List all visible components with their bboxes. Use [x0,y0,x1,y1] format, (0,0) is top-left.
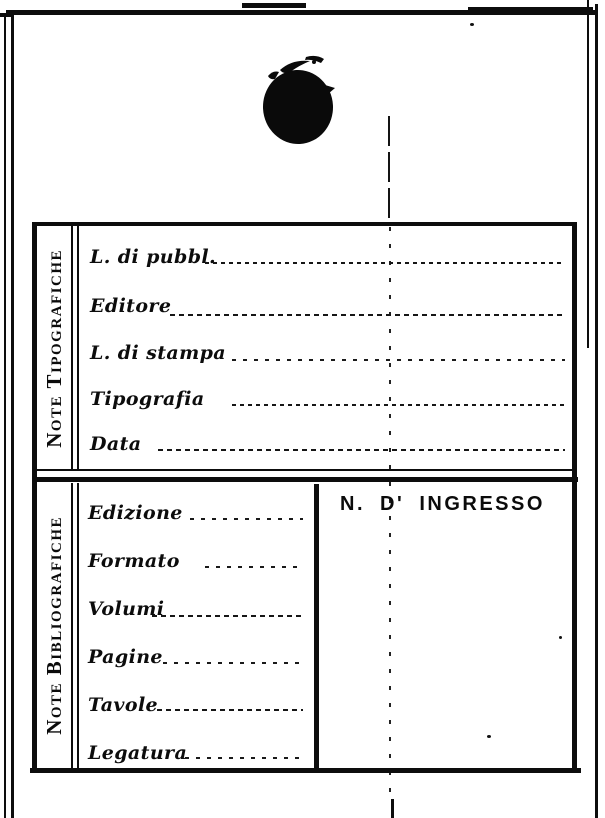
scan-speckle [559,636,562,639]
field-label-data: Data [90,435,141,454]
fold-line-bottom-tick [391,799,394,818]
section-label-tipografiche: Note Tipografiche [42,249,67,448]
ink-blot-stamp [248,48,358,168]
section-note-bibliografiche: Note Bibliografiche [36,483,72,768]
fill-line-legatura [185,757,303,759]
ingresso-heading: N. D' INGRESSO [340,494,545,514]
fold-line-top [388,116,390,222]
scan-border-top-double [242,3,306,8]
table-border-bottom [30,768,581,773]
fill-line-edizione [190,518,303,520]
section-note-tipografiche: Note Tipografiche [36,227,72,469]
fill-line-tipografia [232,404,565,406]
fill-line-formato [205,566,303,568]
fill-line-tavole [157,709,303,711]
section-label-bibliografiche: Note Bibliografiche [42,516,67,735]
fill-line-pagine [163,662,303,664]
field-label-formato: Formato [88,552,180,571]
field-label-pagine: Pagine [88,648,163,667]
field-label-tipografia: Tipografia [90,390,205,409]
scan-speckle [487,735,491,738]
section-divider-thin [36,469,574,471]
field-label-legatura: Legatura [88,744,187,763]
scan-border-right-inner [587,0,589,348]
fill-line-luogo-stampa [232,359,565,361]
field-label-tavole: Tavole [88,696,158,715]
sidebar-rule-top-b [77,226,79,469]
fill-line-editore [170,314,565,316]
field-label-edizione: Edizione [88,504,183,523]
ingresso-divider [314,484,319,768]
fill-line-volumi [152,615,303,617]
field-label-editore: Editore [90,297,171,316]
field-label-luogo-stampa: L. di stampa [90,344,226,363]
fill-line-data [158,449,565,451]
sidebar-rule-bottom-b [77,483,79,768]
scan-speckle [470,23,474,26]
fill-line-luogo-pubblicazione [205,262,565,264]
table-border-right [572,224,577,772]
scan-border-top-thick [468,7,593,12]
field-label-luogo-pubblicazione: L. di pubbl. [90,248,216,267]
table-border-top [32,222,577,226]
scan-border-left-outer [4,13,6,818]
scan-border-left-inner [11,15,14,818]
scan-border-right-outer [595,4,598,818]
section-divider-thick [32,477,578,482]
catalog-card-scan: Note Tipografiche Note Bibliografiche L.… [0,0,605,818]
